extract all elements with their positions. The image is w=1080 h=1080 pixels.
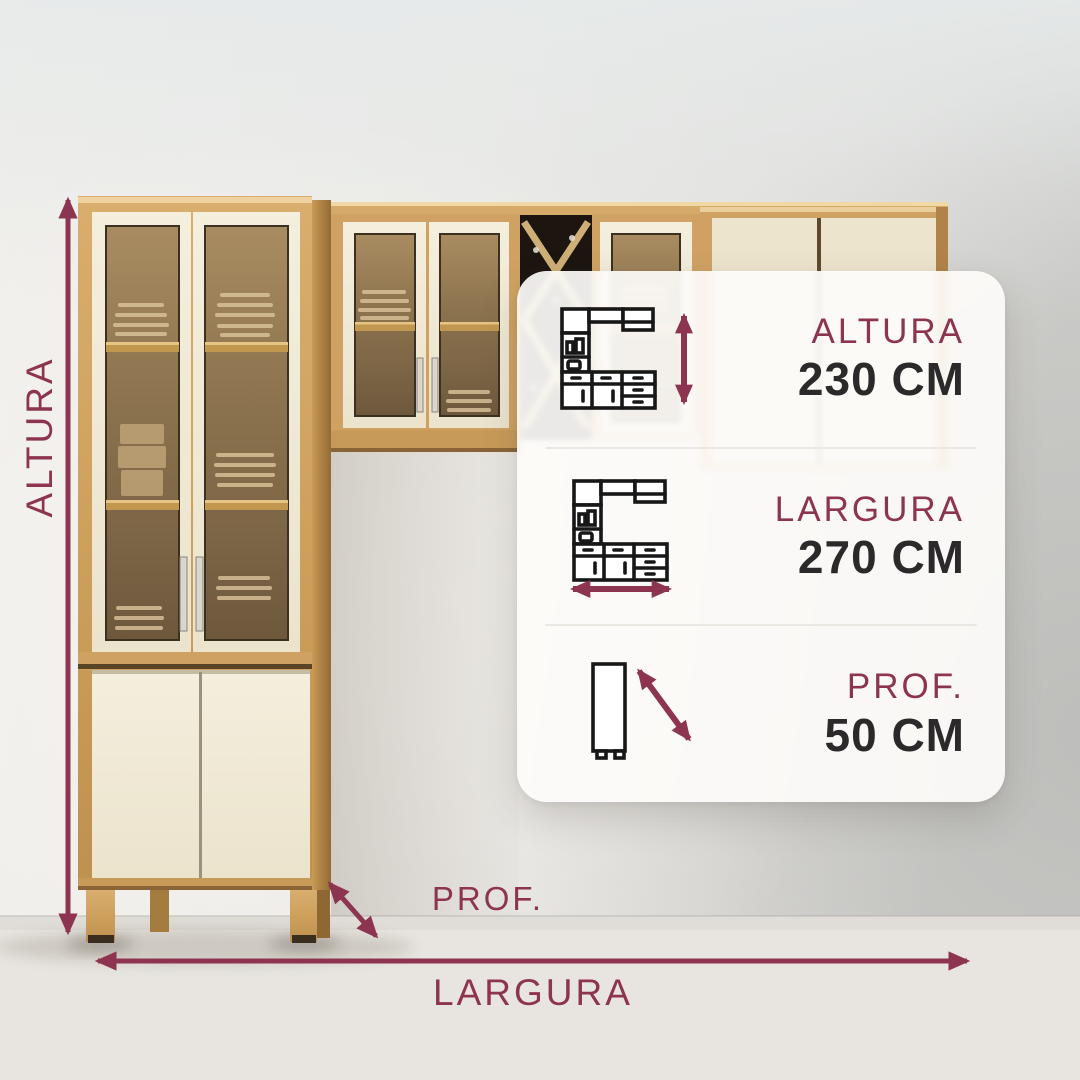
card-value-altura: 230 CM [798,354,965,406]
alcove-shadow [331,452,519,916]
kitchen-cabinet-width-icon [557,476,717,598]
largura-dimension-label: LARGURA [433,972,633,1014]
kitchen-cabinet-height-icon [557,304,717,414]
wall-cabinet-glass-left [331,214,520,452]
card-value-prof: 50 CM [825,710,965,762]
card-label-largura: LARGURA [775,490,965,530]
dimensions-card: ALTURA 230 CM [517,271,1005,802]
tall-cabinet [78,196,331,943]
card-label-prof: PROF. [847,667,965,707]
prof-dimension-label: PROF. [432,880,544,918]
card-value-largura: 270 CM [798,532,965,584]
card-row-largura: LARGURA 270 CM [517,449,1005,625]
cabinet-side-depth-icon [557,658,717,770]
card-row-prof: PROF. 50 CM [517,626,1005,802]
card-row-altura: ALTURA 230 CM [517,271,1005,447]
card-label-altura: ALTURA [812,312,966,352]
furniture-dimensions-infographic: ALTURA PROF. LARGURA [0,0,1080,1080]
altura-dimension-label: ALTURA [19,356,61,517]
